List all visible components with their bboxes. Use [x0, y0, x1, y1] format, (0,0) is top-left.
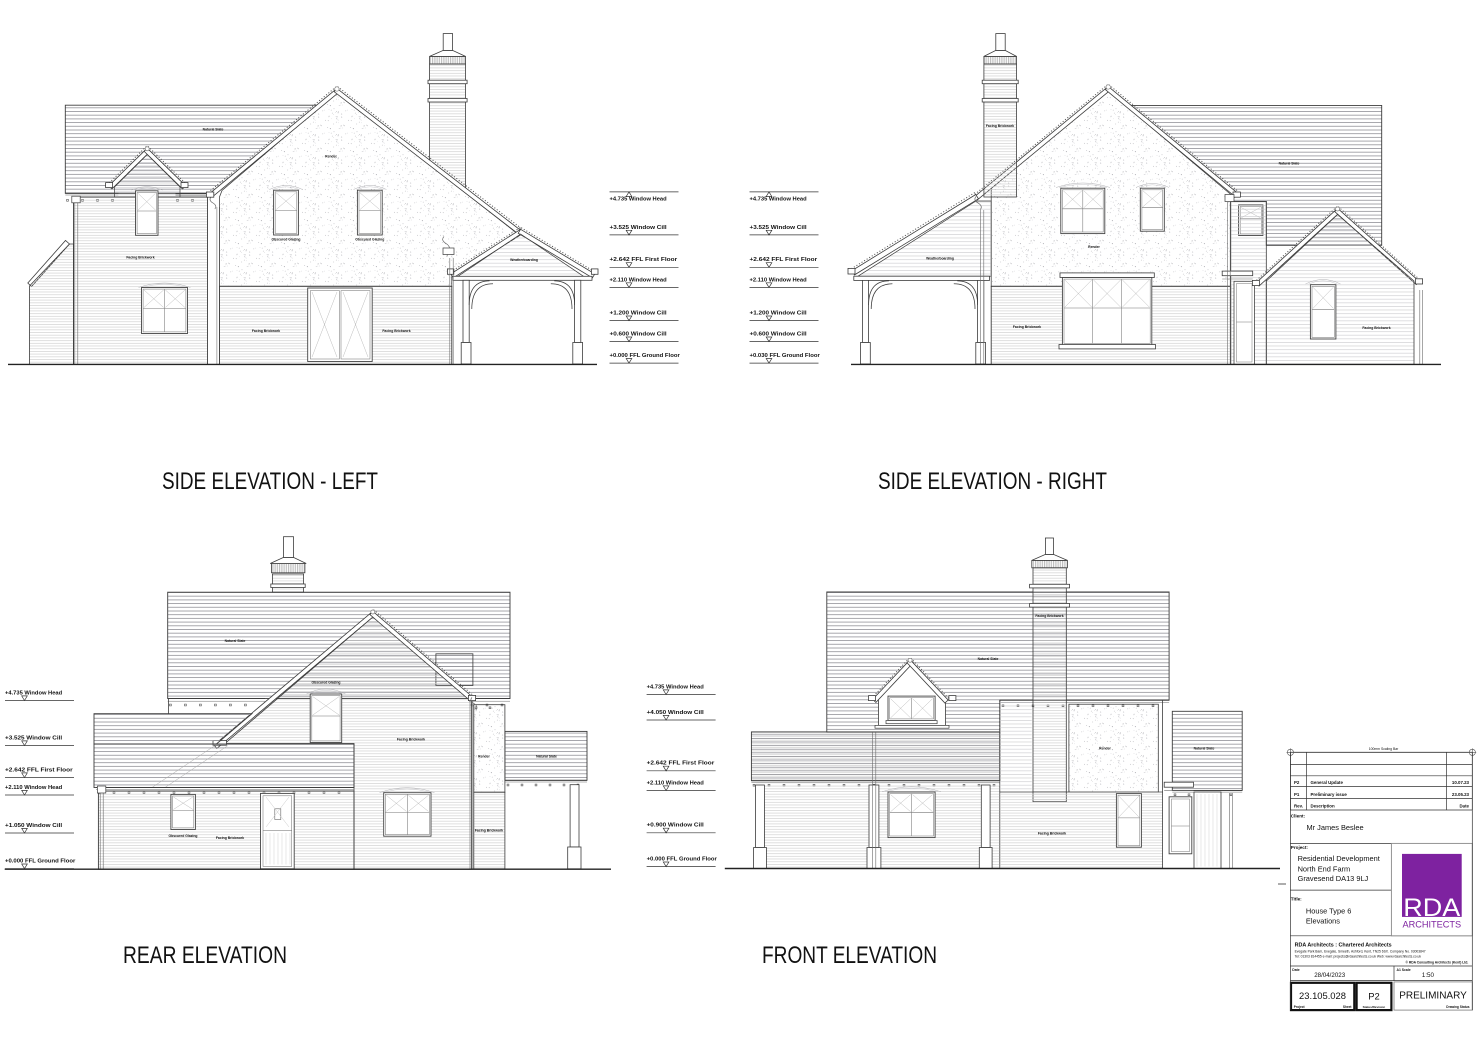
svg-text:+0.000 FFL Ground Floor: +0.000 FFL Ground Floor	[5, 859, 75, 865]
svg-text:General Update: General Update	[1311, 780, 1344, 785]
svg-text:Title:: Title:	[1291, 897, 1302, 902]
svg-text:1:50: 1:50	[1422, 972, 1435, 979]
svg-text:A1 Scale: A1 Scale	[1397, 968, 1411, 972]
svg-text:P1: P1	[1294, 792, 1300, 797]
svg-text:+0.900 Window Cill: +0.900 Window Cill	[647, 823, 705, 829]
svg-text:28/04/2023: 28/04/2023	[1314, 972, 1346, 979]
svg-text:+4.050 Window Cill: +4.050 Window Cill	[647, 710, 705, 716]
svg-text:+4.735 Window Head: +4.735 Window Head	[647, 684, 704, 690]
svg-text:North End Farm: North End Farm	[1298, 864, 1351, 873]
svg-text:Date: Date	[1459, 804, 1469, 809]
svg-text:Project: Project	[1294, 1005, 1306, 1009]
svg-text:+0.600 Window Cill: +0.600 Window Cill	[610, 332, 668, 338]
svg-text:+2.642 FFL First Floor: +2.642 FFL First Floor	[647, 761, 715, 767]
svg-text:Facing Brickwork: Facing Brickwork	[216, 836, 244, 840]
svg-text:Gravesend DA13 9LJ: Gravesend DA13 9LJ	[1298, 874, 1369, 883]
svg-text:Facing Brickwork: Facing Brickwork	[475, 829, 503, 833]
svg-text:Mr James Beslee: Mr James Beslee	[1307, 823, 1364, 832]
svg-text:REAR ELEVATION: REAR ELEVATION	[123, 942, 287, 969]
svg-text:Natural Slate: Natural Slate	[225, 639, 246, 643]
svg-text:+3.525 Window Cill: +3.525 Window Cill	[5, 735, 63, 741]
svg-text:House Type 6: House Type 6	[1306, 906, 1351, 915]
svg-text:Evegate Park Barn, Evegate, Sm: Evegate Park Barn, Evegate, Smeeth, Ashf…	[1295, 950, 1426, 954]
svg-text:Status/Revision: Status/Revision	[1363, 1005, 1386, 1009]
svg-text:Date: Date	[1292, 968, 1299, 972]
svg-text:Obscured Glazing: Obscured Glazing	[271, 238, 300, 242]
svg-text:Rev.: Rev.	[1294, 804, 1303, 809]
svg-text:23.05.23: 23.05.23	[1452, 792, 1470, 797]
svg-text:+1.200 Window Cill: +1.200 Window Cill	[750, 311, 808, 317]
svg-text:FRONT ELEVATION: FRONT ELEVATION	[762, 942, 937, 969]
svg-text:Preliminary issue: Preliminary issue	[1311, 792, 1348, 797]
svg-text:+4.735 Window Head: +4.735 Window Head	[5, 690, 62, 696]
svg-text:Facing Brickwork: Facing Brickwork	[126, 256, 154, 260]
svg-text:Facing Brickwork: Facing Brickwork	[382, 329, 410, 333]
svg-text:Render: Render	[325, 155, 337, 159]
svg-text:+0.030 FFL Ground Floor: +0.030 FFL Ground Floor	[750, 353, 820, 359]
svg-text:Client:: Client:	[1291, 814, 1306, 819]
svg-text:+4.735 Window Head: +4.735 Window Head	[750, 197, 807, 203]
svg-text:Sheet: Sheet	[1343, 1005, 1353, 1009]
svg-text:+2.110 Window Head: +2.110 Window Head	[5, 785, 62, 791]
svg-text:23.105.028: 23.105.028	[1299, 990, 1346, 1001]
svg-text:SIDE ELEVATION - RIGHT: SIDE ELEVATION - RIGHT	[878, 468, 1107, 495]
svg-text:100mm Scaling Bar: 100mm Scaling Bar	[1369, 747, 1399, 751]
svg-text:© RDA Consulting Architects (K: © RDA Consulting Architects (Kent) Ltd.	[1405, 960, 1468, 964]
svg-text:+0.600 Window Cill: +0.600 Window Cill	[750, 332, 808, 338]
svg-text:Facing Brickwork: Facing Brickwork	[1013, 325, 1041, 329]
svg-text:Natural Slate: Natural Slate	[1279, 162, 1300, 166]
svg-text:+3.525 Window Cill: +3.525 Window Cill	[610, 225, 668, 231]
svg-text:Tel: 01303 814455 e-mail: pr: Tel: 01303 814455 e-mail: projects@rdaar…	[1295, 954, 1422, 958]
svg-text:+0.000 FFL Ground Floor: +0.000 FFL Ground Floor	[610, 353, 680, 359]
svg-text:+4.735 Window Head: +4.735 Window Head	[610, 197, 667, 203]
svg-text:+2.110 Window Head: +2.110 Window Head	[610, 277, 667, 283]
svg-text:Project:: Project:	[1291, 845, 1309, 850]
svg-text:Natural Slate: Natural Slate	[203, 128, 224, 132]
svg-text:Description: Description	[1311, 804, 1335, 809]
svg-text:+0.000 FFL Ground Floor: +0.000 FFL Ground Floor	[647, 857, 717, 863]
svg-text:Residential Development: Residential Development	[1298, 854, 1380, 863]
svg-text:Facing Brickwork: Facing Brickwork	[1362, 326, 1390, 330]
svg-text:Natural Slate: Natural Slate	[1194, 747, 1215, 751]
svg-text:Elevations: Elevations	[1306, 916, 1340, 925]
svg-text:+2.110 Window Head: +2.110 Window Head	[647, 780, 704, 786]
svg-text:SIDE ELEVATION - LEFT: SIDE ELEVATION - LEFT	[162, 468, 378, 495]
svg-text:+3.525 Window Cill: +3.525 Window Cill	[750, 225, 808, 231]
svg-text:Render: Render	[478, 755, 490, 759]
svg-text:P2: P2	[1294, 780, 1300, 785]
svg-text:Natural Slate: Natural Slate	[978, 657, 999, 661]
svg-text:PRELIMINARY: PRELIMINARY	[1399, 991, 1467, 1002]
svg-text:+1.050 Window Cill: +1.050 Window Cill	[5, 823, 63, 829]
svg-text:+2.642 FFL First Floor: +2.642 FFL First Floor	[750, 257, 818, 263]
svg-text:+1.200 Window Cill: +1.200 Window Cill	[610, 311, 668, 317]
svg-text:10.07.23: 10.07.23	[1452, 780, 1470, 785]
svg-text:Obscured Glazing: Obscured Glazing	[311, 680, 340, 684]
svg-text:Facing Brickwork: Facing Brickwork	[986, 124, 1014, 128]
svg-text:Render: Render	[1099, 747, 1111, 751]
svg-text:Facing Brickwork: Facing Brickwork	[252, 329, 280, 333]
svg-text:P2: P2	[1368, 991, 1379, 1002]
svg-text:RDA: RDA	[1403, 894, 1460, 922]
svg-text:Drawing Status: Drawing Status	[1446, 1005, 1469, 1009]
svg-text:Facing Brickwork: Facing Brickwork	[1038, 831, 1066, 835]
svg-text:Facing Brickwork: Facing Brickwork	[1035, 614, 1063, 618]
svg-text:Weatherboarding: Weatherboarding	[926, 257, 954, 261]
svg-text:Natural Slate: Natural Slate	[536, 755, 557, 759]
svg-text:+2.642 FFL First Floor: +2.642 FFL First Floor	[610, 257, 678, 263]
svg-text:+2.110 Window Head: +2.110 Window Head	[750, 277, 807, 283]
svg-text:Render: Render	[1088, 245, 1100, 249]
svg-text:ARCHITECTS: ARCHITECTS	[1402, 919, 1461, 929]
svg-text:RDA Architects : Chartered Arc: RDA Architects : Chartered Architects	[1295, 943, 1392, 949]
svg-text:Weatherboarding: Weatherboarding	[510, 258, 538, 262]
svg-text:Obscured Glazing: Obscured Glazing	[168, 834, 197, 838]
svg-text:+2.642 FFL First Floor: +2.642 FFL First Floor	[5, 767, 73, 773]
svg-text:Obscured Glazing: Obscured Glazing	[355, 238, 384, 242]
svg-text:Facing Brickwork: Facing Brickwork	[397, 737, 425, 741]
